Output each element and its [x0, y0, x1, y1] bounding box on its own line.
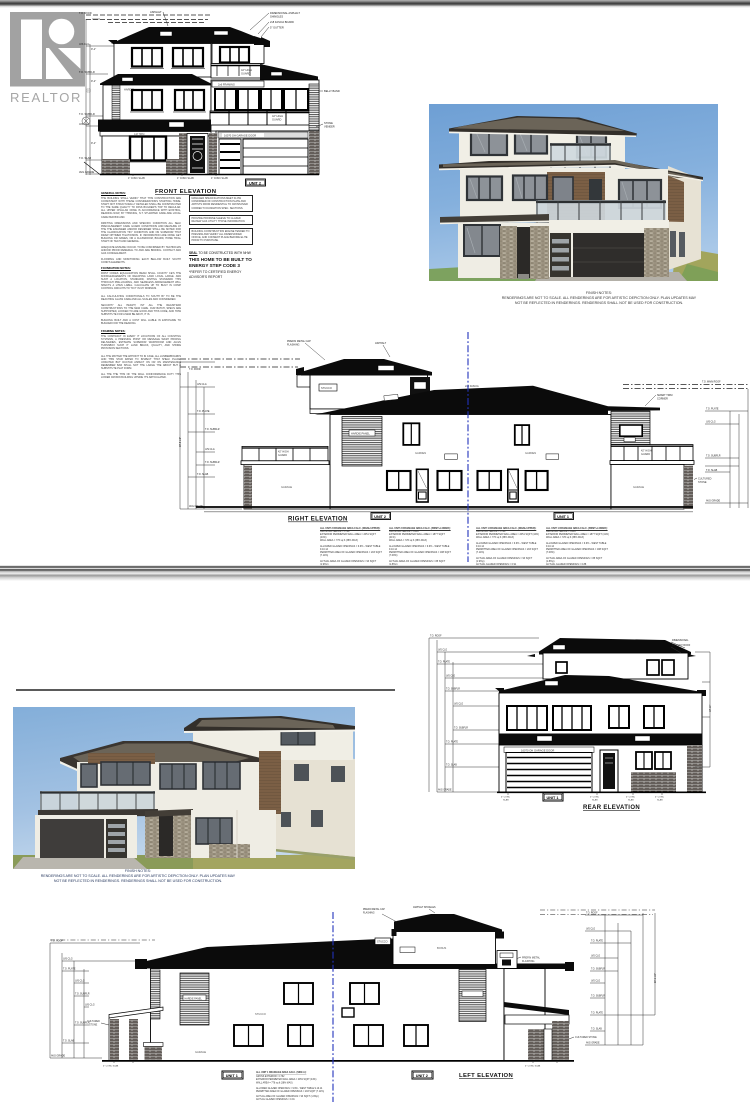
svg-text:GUARD: GUARD — [641, 453, 650, 456]
svg-text:GARAGE: GARAGE — [281, 485, 292, 489]
svg-text:FLASHING: FLASHING — [363, 911, 375, 914]
svg-text:U/S CLG: U/S CLG — [63, 958, 73, 961]
svg-text:ASPHALT: ASPHALT — [375, 342, 387, 345]
svg-text:GUARD: GUARD — [278, 454, 287, 457]
svg-text:T.O. PLATE: T.O. PLATE — [63, 968, 76, 971]
svg-text:U/S CLG: U/S CLG — [197, 383, 207, 386]
svg-text:5" GUTTER: 5" GUTTER — [270, 26, 284, 30]
svg-text:T.O. SUBFLR: T.O. SUBFLR — [446, 689, 460, 691]
svg-text:ASPHALT: ASPHALT — [150, 10, 162, 14]
svg-text:U/S CLG: U/S CLG — [591, 981, 600, 983]
svg-text:SLAB: SLAB — [628, 798, 634, 801]
svg-text:DIMENSIONAL ASPHALT: DIMENSIONAL ASPHALT — [270, 11, 300, 15]
svg-text:29'-9 1/2": 29'-9 1/2" — [179, 437, 182, 447]
svg-text:T.O. ROOF: T.O. ROOF — [430, 636, 442, 638]
svg-text:T.O. PLATE: T.O. PLATE — [706, 408, 719, 411]
svg-text:ASPHALT ROOF: ASPHALT ROOF — [672, 644, 691, 647]
svg-text:CULTURED STONE: CULTURED STONE — [575, 1036, 597, 1039]
svg-text:T.O. SLAB: T.O. SLAB — [79, 156, 91, 160]
svg-text:T.O. SUBFLR: T.O. SUBFLR — [75, 993, 90, 996]
svg-text:U/S CLG: U/S CLG — [591, 956, 600, 958]
svg-text:UNIT 2: UNIT 2 — [416, 1074, 428, 1078]
svg-text:T.O. ROOF: T.O. ROOF — [586, 913, 598, 915]
svg-text:STONE: STONE — [698, 481, 707, 484]
svg-text:T.O. SLAB: T.O. SLAB — [446, 764, 457, 767]
svg-text:LEFT ELEVATION: LEFT ELEVATION — [459, 1073, 513, 1079]
svg-text:UNIT 2: UNIT 2 — [249, 181, 261, 185]
svg-text:BONUS: BONUS — [437, 946, 446, 950]
svg-text:VENEER: VENEER — [324, 125, 335, 129]
svg-text:AVG GRADE: AVG GRADE — [51, 1055, 65, 1058]
svg-text:4" CONC: 4" CONC — [590, 797, 599, 799]
svg-text:SLAB: SLAB — [592, 798, 598, 801]
svg-text:T.O. SLAB: T.O. SLAB — [591, 1028, 602, 1031]
svg-text:SLAB: SLAB — [503, 798, 509, 801]
svg-text:T.O. SLAB: T.O. SLAB — [706, 469, 718, 472]
svg-text:GUARD: GUARD — [272, 118, 281, 122]
svg-text:WALL AREA = 776 sq ft (38% MAX: WALL AREA = 776 sq ft (38% MAX) — [256, 1081, 293, 1084]
svg-text:16070 OH GARAGE DOOR: 16070 OH GARAGE DOOR — [521, 748, 554, 752]
svg-text:4" CONC SLAB: 4" CONC SLAB — [525, 1065, 541, 1068]
svg-text:ASPHALT SHINGLES: ASPHALT SHINGLES — [413, 906, 436, 909]
svg-text:STONE: STONE — [89, 1023, 98, 1026]
svg-text:9'-1": 9'-1" — [91, 141, 96, 145]
svg-text:UNIT 1: UNIT 1 — [226, 1074, 238, 1078]
svg-text:T.O. SUBFLR: T.O. SUBFLR — [591, 969, 605, 971]
svg-text:U/S CLG: U/S CLG — [446, 676, 455, 678]
svg-text:T.O. PLATE: T.O. PLATE — [446, 741, 458, 744]
svg-text:T.O. SUBFLR: T.O. SUBFLR — [205, 461, 220, 464]
svg-text:RIGHT ELEVATION: RIGHT ELEVATION — [288, 517, 348, 523]
svg-text:T.O. SLAB: T.O. SLAB — [63, 1040, 75, 1043]
svg-text:U/S CLG: U/S CLG — [586, 929, 595, 931]
svg-text:GARDEN: GARDEN — [415, 451, 426, 455]
svg-text:REALTOR: REALTOR — [10, 90, 82, 105]
svg-text:GARDEN: GARDEN — [525, 451, 536, 455]
svg-text:AVG GRADE: AVG GRADE — [586, 1042, 600, 1045]
svg-text:ACTUAL GLAZED OPENINGS = 0.91: ACTUAL GLAZED OPENINGS = 0.91 — [256, 1098, 295, 1101]
svg-text:STUCCO: STUCCO — [255, 1012, 266, 1016]
svg-text:ALL UNIT 1 DRAINAGE AREA CALC.: ALL UNIT 1 DRAINAGE AREA CALC. (SIDE A): — [256, 1071, 307, 1074]
svg-text:UNIT 2: UNIT 2 — [374, 515, 386, 519]
svg-text:GARAGE: GARAGE — [633, 485, 644, 489]
svg-text:T.O. SUBFLR: T.O. SUBFLR — [591, 996, 605, 998]
svg-text:2x6 FRAMING: 2x6 FRAMING — [218, 83, 235, 87]
svg-text:29'-9 1/2": 29'-9 1/2" — [655, 973, 657, 983]
svg-text:T.O. MAIN ROOF: T.O. MAIN ROOF — [702, 381, 721, 384]
svg-text:T.O. ROOF: T.O. ROOF — [189, 368, 201, 371]
svg-text:ALLOWED GLAZED OPENINGS = 9.9%: ALLOWED GLAZED OPENINGS = 9.9% - WEST TA… — [256, 1087, 323, 1090]
svg-text:CORNER: CORNER — [657, 398, 668, 401]
svg-text:HARDIE PANEL: HARDIE PANEL — [185, 997, 203, 1000]
svg-text:U/S CLG: U/S CLG — [75, 980, 85, 983]
svg-text:16070 OH GARAGE DOOR: 16070 OH GARAGE DOOR — [224, 133, 256, 137]
svg-text:AVG GRADE: AVG GRADE — [438, 789, 452, 792]
svg-text:AVG GRADE: AVG GRADE — [79, 170, 94, 174]
svg-text:UNIT 1: UNIT 1 — [547, 796, 559, 800]
svg-text:GUARD: GUARD — [241, 72, 250, 76]
svg-text:PREFIN METAL CAP: PREFIN METAL CAP — [363, 908, 385, 911]
svg-text:BELLY BAND: BELLY BAND — [324, 89, 340, 93]
svg-text:4" CONC: 4" CONC — [655, 797, 664, 799]
svg-text:T.O. SUBFLR: T.O. SUBFLR — [79, 112, 95, 116]
svg-text:4" CONC SLAB: 4" CONC SLAB — [211, 177, 228, 180]
svg-text:FLASHING: FLASHING — [522, 960, 535, 963]
svg-text:T.O. PLATE: T.O. PLATE — [591, 940, 603, 943]
svg-text:4" CONC: 4" CONC — [626, 797, 635, 799]
svg-text:STUCCO: STUCCO — [377, 941, 388, 944]
svg-text:U/S CLG: U/S CLG — [706, 421, 716, 424]
svg-text:HARDIE PANEL: HARDIE PANEL — [351, 431, 370, 435]
svg-text:STUCCO: STUCCO — [321, 386, 332, 390]
svg-text:U/S CLG: U/S CLG — [205, 448, 215, 451]
svg-text:U/S CLG: U/S CLG — [454, 704, 463, 706]
svg-text:AVG GRADE: AVG GRADE — [706, 500, 720, 503]
svg-text:SLAB: SLAB — [657, 798, 663, 801]
svg-text:T.O. SUBFLR: T.O. SUBFLR — [454, 728, 468, 730]
svg-text:ACTUAL AREA OF GLAZED OPENINGS: ACTUAL AREA OF GLAZED OPENINGS = 93 SQFT… — [256, 1095, 319, 1098]
svg-text:42" HIGH: 42" HIGH — [241, 68, 252, 72]
svg-text:SHINGLES: SHINGLES — [270, 15, 283, 19]
svg-text:T.O. SUBFLR: T.O. SUBFLR — [706, 455, 721, 458]
svg-text:®: ® — [86, 87, 91, 95]
svg-text:REAR ELEVATION: REAR ELEVATION — [583, 805, 640, 811]
svg-text:U/S CLG: U/S CLG — [438, 650, 447, 652]
svg-text:4" CONC SLAB: 4" CONC SLAB — [128, 177, 145, 180]
svg-text:T.O. PLATE: T.O. PLATE — [591, 1012, 603, 1015]
svg-text:2x8 FASCIA: 2x8 FASCIA — [465, 385, 479, 388]
svg-text:GARAGE: GARAGE — [195, 1050, 206, 1054]
svg-text:19'-11": 19'-11" — [709, 705, 712, 712]
svg-text:T.O. SUBFLR: T.O. SUBFLR — [205, 428, 220, 431]
svg-text:T.O. SLAB: T.O. SLAB — [197, 473, 209, 476]
svg-text:2x8 FASCIA BOARD: 2x8 FASCIA BOARD — [270, 20, 294, 24]
svg-text:PERMITTED AREA OF GLAZED OPENI: PERMITTED AREA OF GLAZED OPENINGS = 203 … — [256, 1090, 324, 1093]
svg-text:FLASHING: FLASHING — [287, 344, 300, 347]
svg-text:4" CONC: 4" CONC — [501, 797, 510, 799]
svg-text:UNIT 1: UNIT 1 — [557, 515, 569, 519]
svg-text:DIMENSIONAL: DIMENSIONAL — [672, 639, 689, 642]
svg-text:U/S CLG: U/S CLG — [85, 1004, 95, 1007]
svg-text:EXTERIOR PERIMETER WALL AREA =: EXTERIOR PERIMETER WALL AREA = 2051 SQFT… — [256, 1078, 317, 1081]
svg-text:4" CONC SLAB: 4" CONC SLAB — [177, 177, 194, 180]
svg-text:4" CONC SLAB: 4" CONC SLAB — [103, 1065, 119, 1068]
svg-text:STONE: STONE — [324, 121, 333, 125]
svg-text:42" HIGH: 42" HIGH — [272, 114, 283, 118]
svg-text:T.O. PLATE: T.O. PLATE — [197, 410, 210, 413]
svg-text:T.O. PLATE: T.O. PLATE — [438, 661, 450, 664]
svg-text:GROSS EXTERIOR = 1762: GROSS EXTERIOR = 1762 — [256, 1076, 285, 1078]
